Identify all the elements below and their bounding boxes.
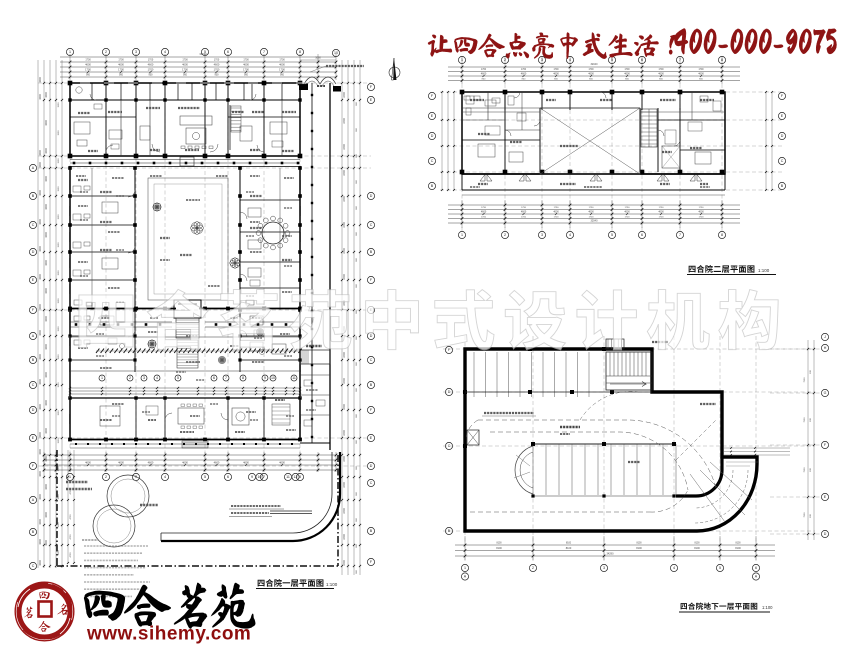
svg-text:1700: 1700 xyxy=(588,69,594,71)
svg-text:1500: 1500 xyxy=(58,494,60,500)
svg-text:1: 1 xyxy=(101,376,103,380)
svg-text:8100: 8100 xyxy=(735,547,741,550)
svg-text:1700: 1700 xyxy=(521,217,527,219)
svg-text:3: 3 xyxy=(541,58,543,62)
svg-text:1790: 1790 xyxy=(554,207,560,209)
svg-text:3300: 3300 xyxy=(45,400,48,406)
svg-text:4600: 4600 xyxy=(243,461,249,465)
svg-text:3300: 3300 xyxy=(45,92,48,98)
svg-text:5: 5 xyxy=(611,233,613,237)
svg-text:1790: 1790 xyxy=(521,207,527,209)
svg-text:9: 9 xyxy=(251,475,253,479)
svg-text:C: C xyxy=(370,481,373,485)
svg-text:3300: 3300 xyxy=(39,354,42,360)
svg-text:2: 2 xyxy=(504,233,506,237)
svg-text:6: 6 xyxy=(755,566,757,570)
svg-text:1700: 1700 xyxy=(243,68,249,72)
svg-text:2400: 2400 xyxy=(343,456,346,462)
svg-text:2: 2 xyxy=(105,50,107,54)
svg-text:4600: 4600 xyxy=(279,63,285,67)
svg-text:2400: 2400 xyxy=(343,248,346,254)
svg-text:4730: 4730 xyxy=(70,534,72,540)
svg-text:10: 10 xyxy=(334,51,338,55)
svg-text:900: 900 xyxy=(215,74,220,77)
svg-text:3: 3 xyxy=(143,376,145,380)
svg-text:12: 12 xyxy=(294,475,298,479)
svg-text:8100: 8100 xyxy=(636,543,642,545)
svg-text:G: G xyxy=(824,391,827,395)
svg-text:7500: 7500 xyxy=(804,512,806,518)
svg-text:D: D xyxy=(370,464,373,468)
svg-text:1500: 1500 xyxy=(58,438,60,444)
svg-text:3300: 3300 xyxy=(39,274,42,280)
svg-text:3300: 3300 xyxy=(39,432,42,438)
svg-text:8100: 8100 xyxy=(566,543,572,545)
svg-text:30240: 30240 xyxy=(199,52,207,56)
svg-text:5: 5 xyxy=(719,566,721,570)
svg-text:7: 7 xyxy=(679,58,681,62)
svg-text:3300: 3300 xyxy=(45,316,48,322)
svg-text:2400: 2400 xyxy=(343,274,346,280)
svg-text:1500: 1500 xyxy=(58,326,60,332)
svg-text:1700: 1700 xyxy=(214,68,220,72)
svg-text:4600: 4600 xyxy=(658,211,664,214)
svg-text:D: D xyxy=(824,532,827,536)
svg-text:2400: 2400 xyxy=(343,430,346,436)
svg-text:C: C xyxy=(431,159,434,163)
svg-text:4730: 4730 xyxy=(70,466,72,472)
svg-text:1700: 1700 xyxy=(243,59,249,62)
svg-text:4600: 4600 xyxy=(85,461,91,465)
svg-text:1700: 1700 xyxy=(481,217,487,219)
svg-text:4730: 4730 xyxy=(70,514,72,520)
svg-text:1500: 1500 xyxy=(58,158,60,164)
svg-text:8100: 8100 xyxy=(496,543,502,545)
svg-text:1700: 1700 xyxy=(553,69,559,71)
svg-text:1500: 1500 xyxy=(58,130,60,136)
svg-text:900: 900 xyxy=(86,74,91,77)
svg-text:4: 4 xyxy=(156,376,158,380)
svg-text:1700: 1700 xyxy=(148,59,154,62)
svg-text:2400: 2400 xyxy=(343,560,346,566)
svg-text:1: 1 xyxy=(461,233,463,237)
svg-text:8: 8 xyxy=(242,376,244,380)
svg-text:D: D xyxy=(32,408,35,412)
svg-text:1790: 1790 xyxy=(481,207,487,209)
svg-text:34290: 34290 xyxy=(607,553,615,556)
svg-text:1500: 1500 xyxy=(58,550,60,556)
svg-text:32040: 32040 xyxy=(591,220,599,223)
svg-text:3: 3 xyxy=(603,566,605,570)
svg-text:C: C xyxy=(32,223,35,227)
svg-text:9: 9 xyxy=(264,376,266,380)
svg-text:1790: 1790 xyxy=(659,207,665,209)
svg-text:1700: 1700 xyxy=(182,68,188,72)
svg-text:5: 5 xyxy=(611,58,613,62)
svg-text:4600: 4600 xyxy=(698,211,704,214)
svg-text:3300: 3300 xyxy=(39,471,42,477)
svg-text:1700: 1700 xyxy=(182,59,188,62)
svg-text:3300: 3300 xyxy=(45,540,48,546)
svg-text:3: 3 xyxy=(541,233,543,237)
svg-text:7500: 7500 xyxy=(804,467,806,473)
svg-text:4730: 4730 xyxy=(70,552,72,558)
svg-text:1700: 1700 xyxy=(118,59,124,62)
svg-text:2400: 2400 xyxy=(343,404,346,410)
svg-text:8100: 8100 xyxy=(566,547,572,550)
svg-text:10: 10 xyxy=(271,376,275,380)
svg-text:1700: 1700 xyxy=(85,59,91,62)
svg-text:4600: 4600 xyxy=(214,63,220,67)
svg-text:3300: 3300 xyxy=(45,148,48,154)
svg-text:4600: 4600 xyxy=(118,461,124,465)
svg-text:5080: 5080 xyxy=(315,57,321,60)
svg-text:3300: 3300 xyxy=(39,150,42,156)
svg-text:3300: 3300 xyxy=(45,288,48,294)
svg-text:3300: 3300 xyxy=(39,539,42,545)
svg-text:900: 900 xyxy=(183,74,188,77)
svg-text:1700: 1700 xyxy=(658,69,664,71)
svg-text:1500: 1500 xyxy=(58,102,60,108)
svg-text:2: 2 xyxy=(532,566,534,570)
svg-text:3300: 3300 xyxy=(39,379,42,385)
svg-text:2400: 2400 xyxy=(343,196,346,202)
svg-text:3300: 3300 xyxy=(39,560,42,566)
svg-text:3300: 3300 xyxy=(39,94,42,100)
svg-text:3300: 3300 xyxy=(45,232,48,238)
svg-text:1700: 1700 xyxy=(698,69,704,71)
svg-text:900: 900 xyxy=(149,74,154,77)
svg-text:4600: 4600 xyxy=(658,73,664,76)
svg-text:3300: 3300 xyxy=(39,246,42,252)
svg-text:3300: 3300 xyxy=(45,484,48,490)
svg-text:4: 4 xyxy=(673,566,675,570)
svg-text:4: 4 xyxy=(569,233,571,237)
svg-text:1:100: 1:100 xyxy=(762,605,773,610)
svg-text:2400: 2400 xyxy=(343,508,346,514)
svg-text:5: 5 xyxy=(204,475,206,479)
svg-text:6: 6 xyxy=(641,233,643,237)
svg-text:D: D xyxy=(781,134,784,138)
svg-text:D: D xyxy=(370,194,373,198)
svg-text:8100: 8100 xyxy=(636,547,642,550)
svg-text:1500: 1500 xyxy=(58,382,60,388)
svg-text:2: 2 xyxy=(105,475,107,479)
svg-text:2400: 2400 xyxy=(343,222,346,228)
svg-text:1700: 1700 xyxy=(659,217,665,219)
svg-text:1500: 1500 xyxy=(58,298,60,304)
svg-text:1700: 1700 xyxy=(589,217,595,219)
svg-text:C: C xyxy=(370,223,373,227)
svg-text:1500: 1500 xyxy=(58,242,60,248)
svg-text:11: 11 xyxy=(286,475,290,479)
svg-text:8: 8 xyxy=(721,233,723,237)
svg-text:1790: 1790 xyxy=(589,207,595,209)
svg-text:3300: 3300 xyxy=(39,330,42,336)
svg-text:C: C xyxy=(370,358,373,362)
svg-text:4600: 4600 xyxy=(182,63,188,67)
svg-text:2400: 2400 xyxy=(343,352,346,358)
svg-text:4600: 4600 xyxy=(624,211,630,214)
svg-text:11: 11 xyxy=(292,376,296,380)
svg-text:1700: 1700 xyxy=(279,59,285,62)
svg-text:8100: 8100 xyxy=(735,543,741,545)
svg-text:2400: 2400 xyxy=(343,482,346,488)
svg-text:1700: 1700 xyxy=(279,68,285,72)
svg-text:www.sihemy.com: www.sihemy.com xyxy=(86,624,251,645)
svg-text:6: 6 xyxy=(641,58,643,62)
svg-text:4600: 4600 xyxy=(148,63,154,67)
svg-text:3300: 3300 xyxy=(39,519,42,525)
svg-text:1500: 1500 xyxy=(58,186,60,192)
svg-text:4600: 4600 xyxy=(279,461,285,465)
svg-text:1790: 1790 xyxy=(625,207,631,209)
svg-text:D: D xyxy=(448,390,451,394)
svg-text:1700: 1700 xyxy=(118,68,124,72)
svg-text:3300: 3300 xyxy=(45,204,48,210)
svg-text:4600: 4600 xyxy=(553,211,559,214)
svg-text:3300: 3300 xyxy=(45,120,48,126)
svg-text:4600: 4600 xyxy=(148,461,154,465)
svg-text:4600: 4600 xyxy=(85,63,91,67)
svg-text:4600: 4600 xyxy=(182,461,188,465)
svg-text:1700: 1700 xyxy=(85,68,91,72)
svg-text:3300: 3300 xyxy=(45,428,48,434)
svg-text:900: 900 xyxy=(280,74,285,77)
svg-text:4600: 4600 xyxy=(243,63,249,67)
svg-text:3300: 3300 xyxy=(39,404,42,410)
svg-text:4600: 4600 xyxy=(481,73,487,76)
svg-text:C: C xyxy=(781,159,784,163)
svg-text:3300: 3300 xyxy=(39,190,42,196)
svg-text:7: 7 xyxy=(679,233,681,237)
svg-text:1500: 1500 xyxy=(58,522,60,528)
svg-text:2: 2 xyxy=(129,376,131,380)
svg-text:4600: 4600 xyxy=(214,461,220,465)
svg-text:8100: 8100 xyxy=(496,547,502,550)
svg-text:7500: 7500 xyxy=(804,417,806,423)
svg-text:8: 8 xyxy=(721,58,723,62)
svg-text:1700: 1700 xyxy=(624,69,630,71)
svg-text:D: D xyxy=(431,134,434,138)
svg-text:7: 7 xyxy=(225,376,227,380)
svg-text:1700: 1700 xyxy=(148,68,154,72)
svg-text:2400: 2400 xyxy=(343,378,346,384)
svg-text:3300: 3300 xyxy=(39,494,42,500)
svg-text:1:100: 1:100 xyxy=(326,582,338,587)
svg-text:1: 1 xyxy=(464,566,466,570)
svg-text:1500: 1500 xyxy=(58,354,60,360)
svg-text:7500: 7500 xyxy=(804,377,806,383)
svg-text:1500: 1500 xyxy=(58,466,60,472)
svg-text:3300: 3300 xyxy=(39,219,42,225)
svg-text:2400: 2400 xyxy=(343,92,346,98)
svg-text:1700: 1700 xyxy=(699,217,705,219)
svg-text:5: 5 xyxy=(177,376,179,380)
svg-text:3300: 3300 xyxy=(39,162,42,168)
svg-text:8: 8 xyxy=(299,50,301,54)
svg-text:3300: 3300 xyxy=(39,77,42,83)
svg-text:4600: 4600 xyxy=(698,73,704,76)
svg-text:4: 4 xyxy=(164,475,166,479)
svg-text:4600: 4600 xyxy=(521,211,527,214)
svg-text:2400: 2400 xyxy=(343,144,346,150)
svg-text:2400: 2400 xyxy=(343,534,346,540)
svg-text:900: 900 xyxy=(244,74,249,77)
svg-text:2400: 2400 xyxy=(343,118,346,124)
svg-text:1: 1 xyxy=(69,475,71,479)
svg-text:C: C xyxy=(448,444,451,448)
svg-text:1500: 1500 xyxy=(58,214,60,220)
svg-text:3300: 3300 xyxy=(45,344,48,350)
svg-text:4600: 4600 xyxy=(588,73,594,76)
svg-text:6: 6 xyxy=(227,475,229,479)
svg-text:3300: 3300 xyxy=(45,260,48,266)
svg-text:3: 3 xyxy=(135,50,137,54)
svg-text:7: 7 xyxy=(263,50,265,54)
svg-text:J: J xyxy=(824,335,826,339)
svg-text:2: 2 xyxy=(504,58,506,62)
svg-text:10: 10 xyxy=(258,475,262,479)
svg-text:1500: 1500 xyxy=(58,270,60,276)
svg-text:6: 6 xyxy=(227,50,229,54)
svg-text:8100: 8100 xyxy=(694,547,700,550)
svg-text:C: C xyxy=(32,383,35,387)
svg-text:4600: 4600 xyxy=(624,73,630,76)
svg-text:C: C xyxy=(32,564,35,568)
svg-text:4: 4 xyxy=(164,50,166,54)
svg-text:1: 1 xyxy=(461,58,463,62)
svg-text:6: 6 xyxy=(213,376,215,380)
svg-text:8100: 8100 xyxy=(694,543,700,545)
svg-text:H: H xyxy=(824,346,827,350)
svg-text:1700: 1700 xyxy=(554,217,560,219)
svg-text:900: 900 xyxy=(119,74,124,77)
svg-text:1: 1 xyxy=(69,50,71,54)
svg-text:1700: 1700 xyxy=(521,69,527,71)
svg-text:4600: 4600 xyxy=(118,63,124,67)
svg-text:4: 4 xyxy=(569,58,571,62)
svg-text:D: D xyxy=(370,334,373,338)
svg-text:3300: 3300 xyxy=(39,304,42,310)
svg-text:1700: 1700 xyxy=(214,59,220,62)
svg-text:3300: 3300 xyxy=(45,456,48,462)
svg-text:2400: 2400 xyxy=(343,170,346,176)
svg-text:1500: 1500 xyxy=(58,410,60,416)
svg-text:1700: 1700 xyxy=(625,217,631,219)
svg-text:1790: 1790 xyxy=(699,207,705,209)
svg-text:4600: 4600 xyxy=(481,211,487,214)
svg-text:3300: 3300 xyxy=(39,449,42,455)
svg-text:3300: 3300 xyxy=(45,372,48,378)
svg-text:1700: 1700 xyxy=(481,69,487,71)
svg-text:3300: 3300 xyxy=(45,176,48,182)
svg-text:3300: 3300 xyxy=(45,512,48,518)
svg-text:4600: 4600 xyxy=(521,73,527,76)
svg-text:4600: 4600 xyxy=(588,211,594,214)
svg-text:32040: 32040 xyxy=(591,63,599,66)
svg-text:1:100: 1:100 xyxy=(758,268,770,273)
svg-text:D: D xyxy=(32,250,35,254)
svg-text:4600: 4600 xyxy=(553,73,559,76)
